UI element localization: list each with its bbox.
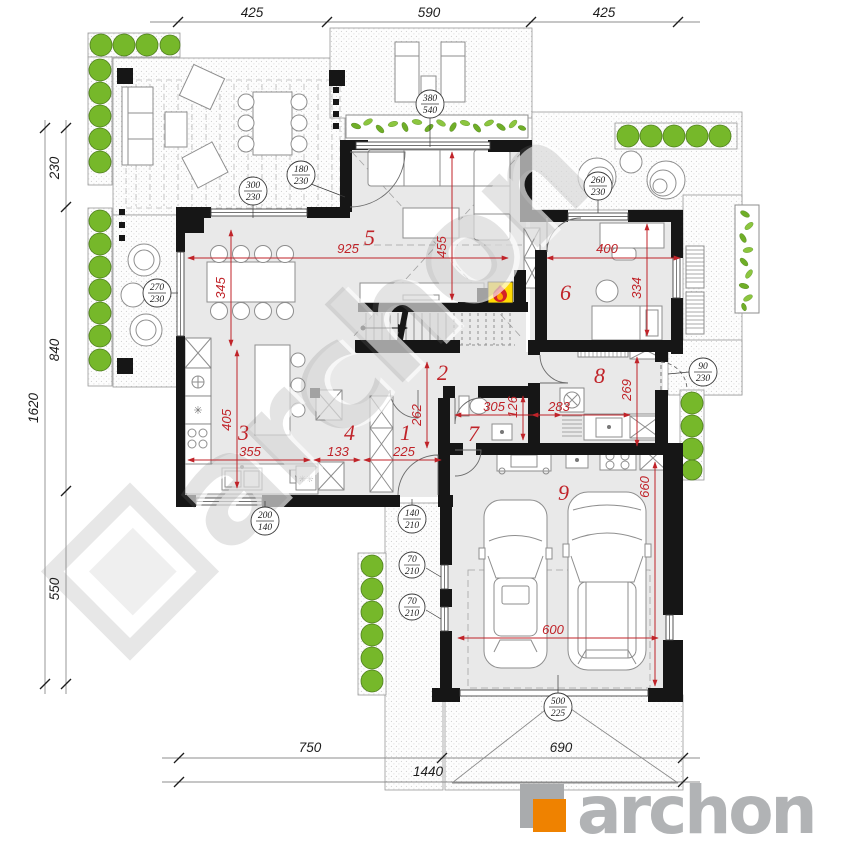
opening-size: 210 (405, 521, 420, 531)
opening-size: 300 (245, 181, 261, 191)
dim-left-550: 550 (47, 577, 62, 600)
room-label-8: 8 (594, 363, 605, 388)
opening-size: 270 (150, 283, 165, 293)
terrace-column (117, 68, 133, 84)
dim-660: 660 (637, 475, 652, 497)
car-suv (563, 492, 651, 670)
opening-size: 200 (258, 511, 273, 521)
dim-355: 355 (239, 444, 261, 459)
opening-size: 70 (407, 597, 417, 607)
room-label-2: 2 (437, 360, 448, 385)
patio-table (620, 151, 642, 173)
room-label-9: 9 (558, 480, 569, 505)
dim-405: 405 (219, 408, 234, 430)
room-label-5: 5 (364, 225, 375, 250)
planter-east (735, 205, 759, 313)
opening-size: 230 (696, 374, 711, 384)
opening-size: 500 (551, 697, 566, 707)
dim-455: 455 (434, 235, 449, 257)
dim-225: 225 (392, 444, 415, 459)
dim-126: 126 (505, 395, 520, 417)
dim-345: 345 (213, 276, 228, 298)
car-sedan (479, 500, 552, 668)
car-mirror (479, 548, 485, 559)
opening-size: 230 (591, 188, 606, 198)
dim-305: 305 (483, 399, 505, 414)
room-label-1: 1 (400, 420, 411, 445)
opening-size: 70 (407, 555, 417, 565)
opening-size: 90 (698, 362, 708, 372)
opening-size: 180 (294, 165, 309, 175)
dim-left-840: 840 (47, 338, 62, 361)
room-label-7: 7 (468, 421, 480, 446)
dim-600: 600 (542, 622, 564, 637)
outdoor-dining-table (253, 92, 292, 155)
dim-400: 400 (596, 241, 618, 256)
dim-925: 925 (337, 241, 359, 256)
opening-size: 140 (405, 509, 420, 519)
opening-size: 225 (551, 709, 566, 719)
floor-plan-canvas: ✳ ✳✳ (0, 0, 853, 853)
room-label-6: 6 (560, 280, 571, 305)
car-mirror (645, 544, 651, 557)
opening-size: 540 (423, 106, 438, 116)
dim-269: 269 (619, 379, 634, 402)
toilet-tank (459, 396, 469, 416)
opening-size: 230 (246, 193, 261, 203)
coffee-table (165, 112, 187, 147)
dim-bottom-1440: 1440 (413, 764, 444, 779)
opening-size: 380 (422, 94, 438, 104)
dim-left-230: 230 (47, 156, 62, 180)
opening-size: 210 (405, 609, 420, 619)
dim-334: 334 (629, 277, 644, 299)
outdoor-sofa (122, 87, 153, 165)
dim-left-1620: 1620 (26, 392, 41, 423)
car-mirror (546, 548, 552, 559)
dim-133: 133 (327, 444, 349, 459)
opening-size: 210 (405, 567, 420, 577)
dim-top-425b: 425 (593, 5, 616, 20)
bedside-table (596, 280, 618, 302)
dim-283: 283 (547, 399, 570, 414)
front-walkway (385, 503, 443, 790)
floor-plan-page: ✳ ✳✳ (0, 0, 853, 853)
dim-262: 262 (409, 403, 424, 426)
opening-size: 140 (258, 523, 273, 533)
opening-size: 230 (294, 177, 309, 187)
opening-size: 230 (150, 295, 165, 305)
logo-wordmark: archon (577, 772, 815, 849)
dim-top-425a: 425 (241, 5, 264, 20)
room-label-4: 4 (344, 420, 355, 445)
dim-bottom-750: 750 (299, 740, 322, 755)
terrace-column (117, 358, 133, 374)
terrace-column (329, 70, 345, 86)
opening-size: 260 (591, 176, 606, 186)
logo-orange-square (533, 799, 566, 832)
dim-bottom-690: 690 (550, 740, 573, 755)
car-mirror (563, 544, 569, 557)
dim-top-590: 590 (418, 5, 441, 20)
room-label-3: 3 (237, 420, 249, 445)
bed (592, 306, 662, 340)
